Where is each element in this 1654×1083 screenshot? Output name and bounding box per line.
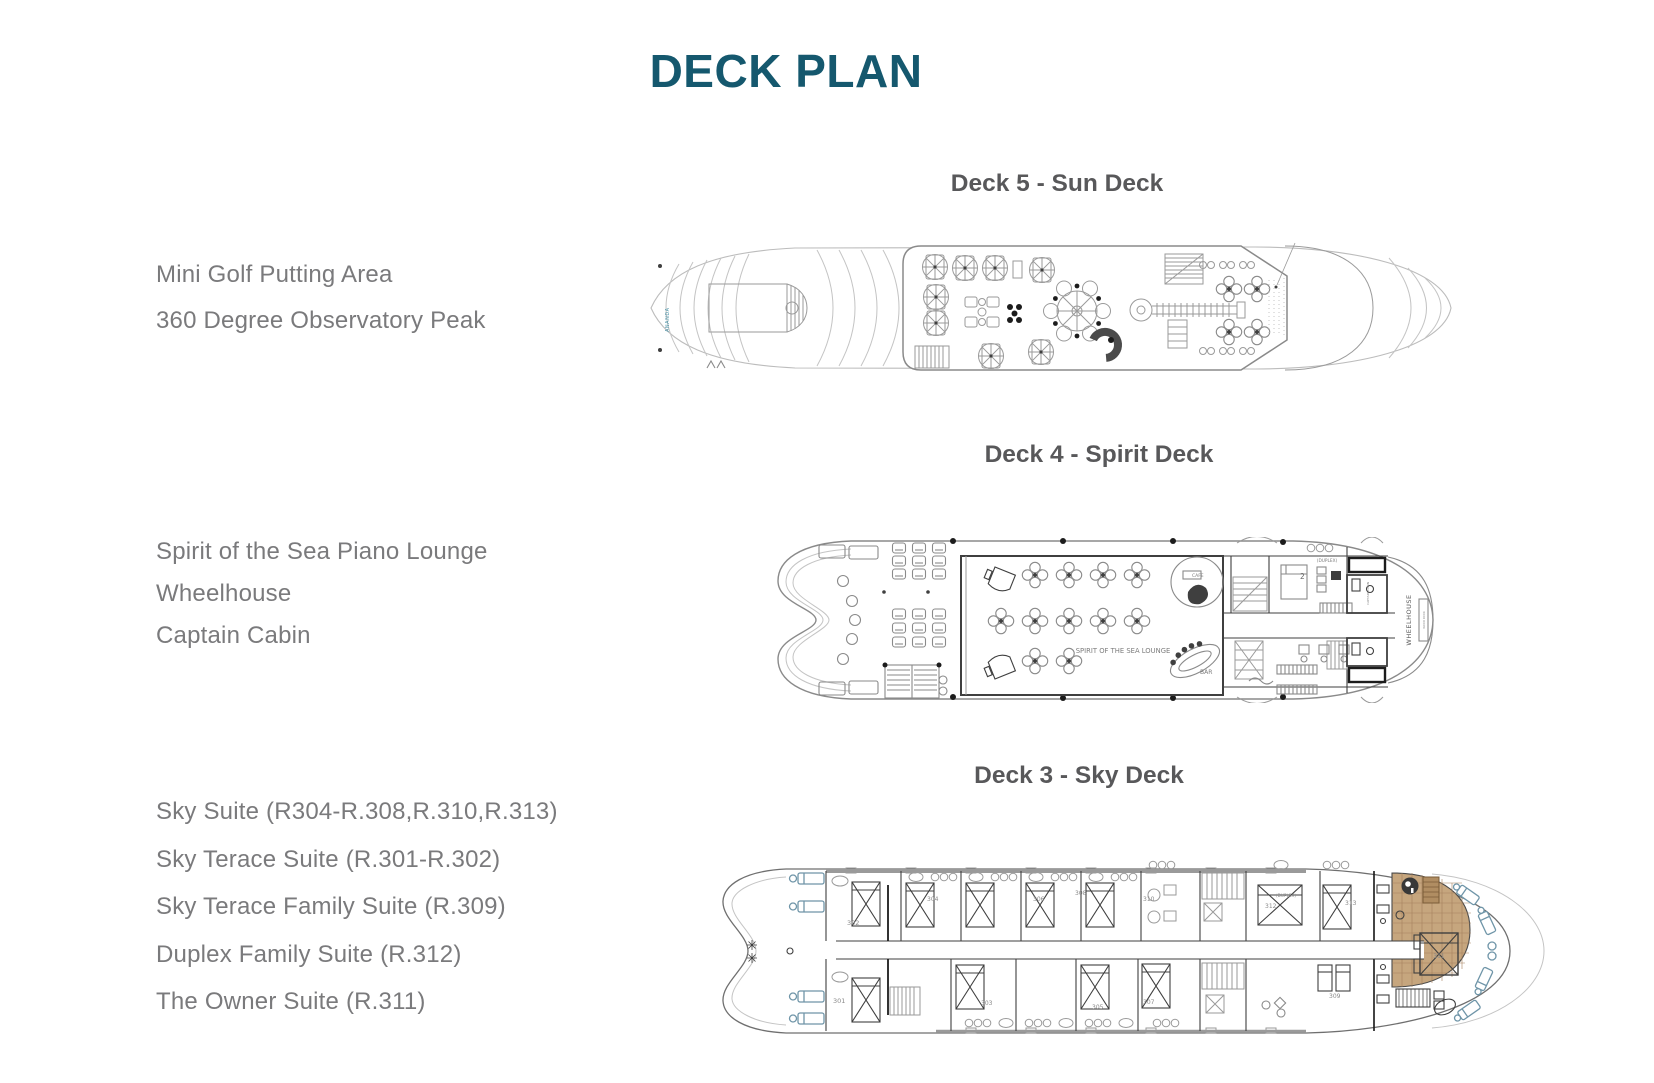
deck-plan-page: DECK PLAN Deck 5 - Sun Deck Mini Golf Pu… xyxy=(0,0,1654,1083)
ship-brand-label: ANANDA xyxy=(665,307,671,332)
feature-item: Sky Suite (R304-R.308,R.310,R.313) xyxy=(156,788,558,836)
deck4-features: Spirit of the Sea Piano Lounge Wheelhous… xyxy=(156,531,488,657)
duplex-label: (DUPLEX) xyxy=(1317,558,1338,564)
room-label: 309 xyxy=(1329,993,1341,1000)
room-label: 301 xyxy=(833,997,845,1005)
feature-item: The Owner Suite (R.311) xyxy=(156,978,558,1026)
room-label: 308 xyxy=(1075,890,1087,897)
wood-door-label: WOOD DOOR xyxy=(1422,611,1426,629)
deck3-features: Sky Suite (R304-R.308,R.310,R.313) Sky T… xyxy=(156,788,558,1026)
deck4-header: Deck 4 - Spirit Deck xyxy=(799,441,1399,469)
lounge-label: SPIRIT OF THE SEA LOUNGE xyxy=(1076,647,1171,655)
feature-item: Mini Golf Putting Area xyxy=(156,252,486,298)
deck5-features: Mini Golf Putting Area 360 Degree Observ… xyxy=(156,252,486,344)
cabinet-icon xyxy=(1423,877,1439,903)
room-label: 312 xyxy=(1265,903,1277,910)
room-label: 303 xyxy=(981,1000,993,1007)
feature-item: Duplex Family Suite (R.312) xyxy=(156,931,558,979)
bar-label: BAR xyxy=(1200,669,1212,676)
feature-item: Captain Cabin xyxy=(156,615,488,657)
room-label: 313 xyxy=(1345,900,1357,907)
room-label: 306 xyxy=(1033,896,1045,903)
deck5-plan: ANANDA xyxy=(645,240,1460,376)
duplex-label: (DUPLEX) xyxy=(1276,893,1296,898)
room-label: 307 xyxy=(1143,999,1155,1006)
feature-item: 360 Degree Observatory Peak xyxy=(156,298,486,344)
page-title: DECK PLAN xyxy=(0,44,1572,98)
feature-item: Sky Terace Family Suite (R.309) xyxy=(156,883,558,931)
sun-deck-platform xyxy=(903,246,1287,370)
room-label: 310 xyxy=(1143,896,1155,903)
room-label: 302 xyxy=(847,919,859,927)
room-label: 311 xyxy=(1433,953,1445,960)
deck3-plan: 302 301 304 306 308 310 312 xyxy=(706,855,1556,1040)
wheelhouse-label: WHEELHOUSE xyxy=(1405,594,1413,645)
spa-seat-icon xyxy=(1402,878,1419,895)
feature-item: Spirit of the Sea Piano Lounge xyxy=(156,531,488,573)
deck5-header: Deck 5 - Sun Deck xyxy=(757,170,1357,198)
deck4-plan: SPIRIT OF THE SEA LOUNGE CAFE BAR xyxy=(733,537,1437,703)
feature-item: Wheelhouse xyxy=(156,573,488,615)
captain-cabin-label: CAPTAIN CABIN xyxy=(1366,582,1370,605)
suite-entry xyxy=(1374,941,1424,959)
cafe-label: CAFE xyxy=(1192,573,1204,579)
feature-item: Sky Terace Suite (R.301-R.302) xyxy=(156,836,558,884)
room-label: 305 xyxy=(1092,1004,1104,1011)
deck3-header: Deck 3 - Sky Deck xyxy=(779,762,1379,790)
duplex-number: 2 xyxy=(1300,572,1305,581)
room-label: 304 xyxy=(927,896,939,903)
